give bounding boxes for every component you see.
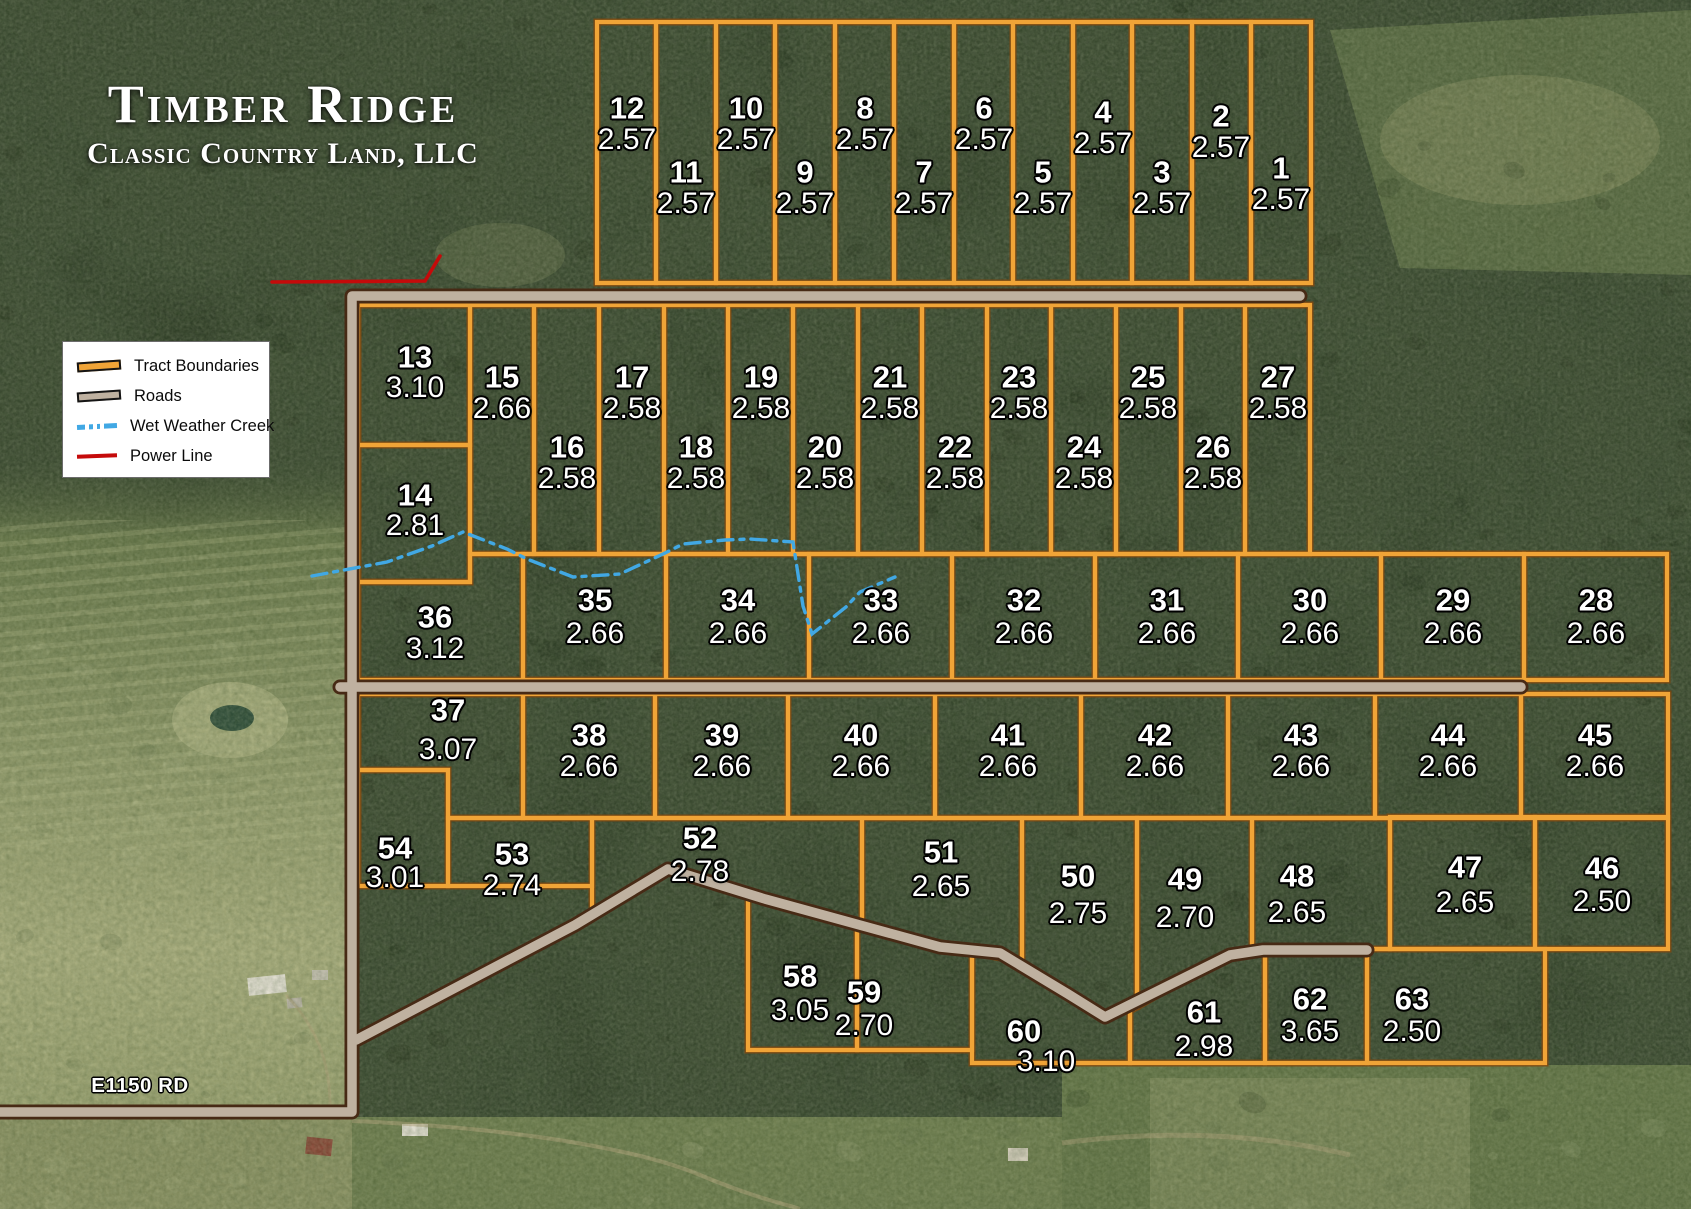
- tract-15-number: 15: [485, 362, 519, 393]
- tract-44-number: 44: [1431, 720, 1465, 751]
- tract-33-acreage: 2.66: [852, 619, 910, 649]
- tract-46-acreage: 2.50: [1573, 887, 1631, 917]
- legend-road-swatch-icon: [77, 389, 122, 402]
- tract-1-acreage: 2.57: [1252, 185, 1310, 215]
- tract-58-number: 58: [783, 961, 817, 992]
- legend-creek-swatch-icon: [77, 422, 117, 429]
- tract-47-acreage: 2.65: [1436, 888, 1494, 918]
- tract-25-acreage: 2.58: [1119, 394, 1177, 424]
- tract-5-acreage: 2.57: [1014, 189, 1072, 219]
- tract-27-number: 27: [1261, 362, 1295, 393]
- tract-24-acreage: 2.58: [1055, 464, 1113, 494]
- tract-7-number: 7: [915, 157, 932, 188]
- tract-61-acreage: 2.98: [1175, 1032, 1233, 1062]
- tract-20-acreage: 2.58: [796, 464, 854, 494]
- tract-59-acreage: 2.70: [835, 1011, 893, 1041]
- tract-30-number: 30: [1293, 585, 1327, 616]
- tract-29-acreage: 2.66: [1424, 619, 1482, 649]
- tract-36-number: 36: [418, 602, 452, 633]
- tract-13-number: 13: [398, 342, 432, 373]
- tract-13-acreage: 3.10: [386, 373, 444, 403]
- tract-15-acreage: 2.66: [473, 394, 531, 424]
- legend-label: Power Line: [130, 447, 213, 466]
- tract-40-number: 40: [844, 720, 878, 751]
- tract-45-number: 45: [1578, 720, 1612, 751]
- tract-3-number: 3: [1153, 157, 1170, 188]
- tract-21-number: 21: [873, 362, 907, 393]
- tract-39-acreage: 2.66: [693, 752, 751, 782]
- tract-6-number: 6: [975, 93, 992, 124]
- legend-label: Tract Boundaries: [134, 357, 259, 376]
- legend-tract-swatch-icon: [77, 359, 122, 372]
- legend-item-road: Roads: [77, 381, 269, 411]
- tract-49-acreage: 2.70: [1156, 903, 1214, 933]
- tract-10-acreage: 2.57: [717, 125, 775, 155]
- tract-33-number: 33: [864, 585, 898, 616]
- tract-62-number: 62: [1293, 984, 1327, 1015]
- road-label-e1150: E1150 RD: [91, 1074, 188, 1098]
- tract-54-acreage: 3.01: [366, 863, 424, 893]
- tract-60-acreage: 3.10: [1017, 1047, 1075, 1077]
- tract-17-acreage: 2.58: [603, 394, 661, 424]
- tract-42-acreage: 2.66: [1126, 752, 1184, 782]
- tract-51-number: 51: [924, 837, 958, 868]
- tract-52-number: 52: [683, 823, 717, 854]
- tract-40-acreage: 2.66: [832, 752, 890, 782]
- tract-42-number: 42: [1138, 720, 1172, 751]
- tract-26-number: 26: [1196, 432, 1230, 463]
- tract-28-acreage: 2.66: [1567, 619, 1625, 649]
- tract-21-acreage: 2.58: [861, 394, 919, 424]
- tract-14-number: 14: [398, 480, 432, 511]
- tract-16-number: 16: [550, 432, 584, 463]
- plat-map: Timber Ridge Classic Country Land, LLC T…: [0, 0, 1691, 1209]
- tract-32-acreage: 2.66: [995, 619, 1053, 649]
- tract-5-number: 5: [1034, 157, 1051, 188]
- tract-37-acreage: 3.07: [419, 735, 477, 765]
- tract-8-number: 8: [856, 93, 873, 124]
- tract-12-acreage: 2.57: [598, 125, 656, 155]
- tract-59-number: 59: [847, 977, 881, 1008]
- tract-19-number: 19: [744, 362, 778, 393]
- map-title: Timber Ridge: [68, 76, 498, 133]
- tract-39-number: 39: [705, 720, 739, 751]
- tract-4-number: 4: [1094, 97, 1111, 128]
- tract-29-number: 29: [1436, 585, 1470, 616]
- tract-23-number: 23: [1002, 362, 1036, 393]
- tract-32-number: 32: [1007, 585, 1041, 616]
- tract-36-acreage: 3.12: [406, 634, 464, 664]
- tract-45-acreage: 2.66: [1566, 752, 1624, 782]
- tract-41-number: 41: [991, 720, 1025, 751]
- tract-61-number: 61: [1187, 997, 1221, 1028]
- tract-37-number: 37: [431, 695, 465, 726]
- tract-31-number: 31: [1150, 585, 1184, 616]
- tract-35-number: 35: [578, 585, 612, 616]
- tract-63-acreage: 2.50: [1383, 1017, 1441, 1047]
- tract-53-acreage: 2.74: [483, 871, 541, 901]
- tract-11-number: 11: [670, 157, 703, 188]
- tract-7-acreage: 2.57: [895, 189, 953, 219]
- legend-label: Roads: [134, 387, 182, 406]
- tract-12-number: 12: [610, 93, 644, 124]
- tract-9-number: 9: [796, 157, 813, 188]
- tract-18-number: 18: [679, 432, 713, 463]
- legend: Tract BoundariesRoadsWet Weather CreekPo…: [62, 341, 270, 478]
- tract-60-number: 60: [1007, 1016, 1041, 1047]
- tract-3-acreage: 2.57: [1133, 189, 1191, 219]
- tract-62-acreage: 3.65: [1281, 1017, 1339, 1047]
- tract-50-number: 50: [1061, 861, 1095, 892]
- tract-22-number: 22: [938, 432, 972, 463]
- tract-28-number: 28: [1579, 585, 1613, 616]
- tract-48-number: 48: [1280, 861, 1314, 892]
- legend-items: Tract BoundariesRoadsWet Weather CreekPo…: [77, 351, 269, 471]
- label-layer: Timber Ridge Classic Country Land, LLC T…: [0, 0, 1691, 1209]
- tract-4-acreage: 2.57: [1074, 129, 1132, 159]
- tract-34-acreage: 2.66: [709, 619, 767, 649]
- tract-35-acreage: 2.66: [566, 619, 624, 649]
- tract-38-number: 38: [572, 720, 606, 751]
- tract-22-acreage: 2.58: [926, 464, 984, 494]
- title-block: Timber Ridge Classic Country Land, LLC: [68, 76, 498, 170]
- tract-48-acreage: 2.65: [1268, 898, 1326, 928]
- tract-8-acreage: 2.57: [836, 125, 894, 155]
- tract-43-acreage: 2.66: [1272, 752, 1330, 782]
- legend-item-creek: Wet Weather Creek: [77, 411, 269, 441]
- tract-58-acreage: 3.05: [771, 996, 829, 1026]
- tract-27-acreage: 2.58: [1249, 394, 1307, 424]
- tract-9-acreage: 2.57: [776, 189, 834, 219]
- tract-20-number: 20: [808, 432, 842, 463]
- map-subtitle: Classic Country Land, LLC: [68, 137, 498, 170]
- tract-43-number: 43: [1284, 720, 1318, 751]
- tract-26-acreage: 2.58: [1184, 464, 1242, 494]
- tract-17-number: 17: [615, 362, 649, 393]
- tract-2-number: 2: [1212, 101, 1229, 132]
- tract-53-number: 53: [495, 839, 529, 870]
- legend-power-swatch-icon: [77, 453, 117, 458]
- tract-44-acreage: 2.66: [1419, 752, 1477, 782]
- tract-34-number: 34: [721, 585, 755, 616]
- tract-14-acreage: 2.81: [386, 511, 444, 541]
- tract-52-acreage: 2.78: [671, 857, 729, 887]
- tract-6-acreage: 2.57: [955, 125, 1013, 155]
- tract-30-acreage: 2.66: [1281, 619, 1339, 649]
- tract-49-number: 49: [1168, 864, 1202, 895]
- tract-18-acreage: 2.58: [667, 464, 725, 494]
- tract-19-acreage: 2.58: [732, 394, 790, 424]
- tract-24-number: 24: [1067, 432, 1101, 463]
- tract-10-number: 10: [729, 93, 763, 124]
- tract-1-number: 1: [1272, 153, 1289, 184]
- tract-38-acreage: 2.66: [560, 752, 618, 782]
- legend-item-power: Power Line: [77, 441, 269, 471]
- tract-41-acreage: 2.66: [979, 752, 1037, 782]
- tract-11-acreage: 2.57: [657, 189, 715, 219]
- tract-46-number: 46: [1585, 853, 1619, 884]
- legend-label: Wet Weather Creek: [130, 417, 274, 436]
- tract-23-acreage: 2.58: [990, 394, 1048, 424]
- tract-16-acreage: 2.58: [538, 464, 596, 494]
- legend-item-tract: Tract Boundaries: [77, 351, 269, 381]
- tract-2-acreage: 2.57: [1192, 133, 1250, 163]
- tract-63-number: 63: [1395, 984, 1429, 1015]
- tract-31-acreage: 2.66: [1138, 619, 1196, 649]
- tract-54-number: 54: [378, 833, 412, 864]
- tract-51-acreage: 2.65: [912, 872, 970, 902]
- tract-50-acreage: 2.75: [1049, 899, 1107, 929]
- tract-47-number: 47: [1448, 852, 1482, 883]
- tract-25-number: 25: [1131, 362, 1165, 393]
